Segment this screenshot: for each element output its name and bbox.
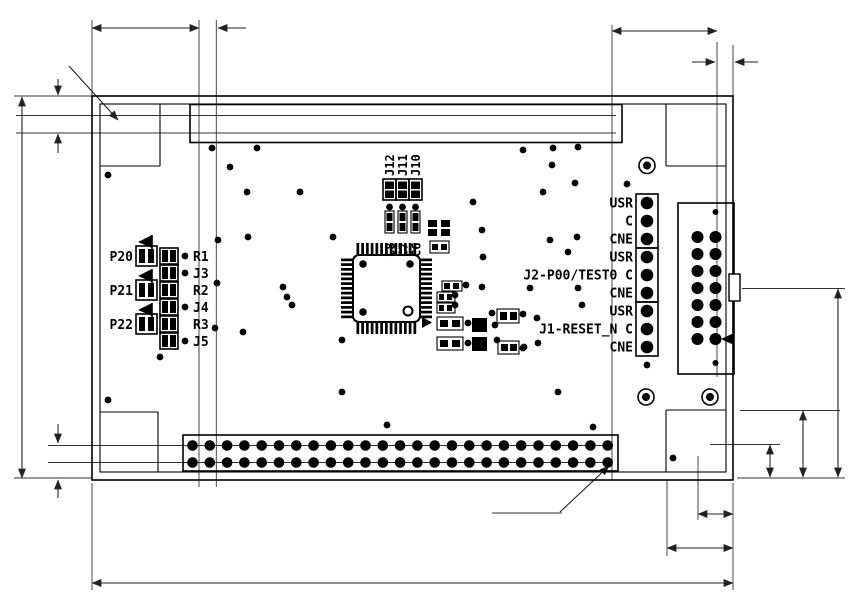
cn2-pin: [481, 440, 492, 451]
via: [244, 189, 251, 196]
ic-pin: [376, 243, 379, 255]
via: [227, 164, 234, 171]
header-row-label: CNE: [610, 233, 633, 248]
cne-pin: [710, 282, 722, 294]
ic-pin: [409, 322, 412, 334]
cne-index-dot-bottom: [713, 360, 719, 366]
header-pin: [641, 233, 654, 246]
ref-label: J4: [193, 301, 209, 316]
via: [644, 362, 651, 369]
connector-cn2: [183, 435, 618, 471]
header-pin: [641, 323, 654, 336]
cn2-pin: [395, 457, 406, 468]
via: [452, 302, 459, 309]
ic-pin: [357, 243, 360, 255]
cn2-pin: [464, 457, 475, 468]
top-jumper-label: J12: [383, 154, 397, 176]
ic-pin: [357, 322, 360, 334]
ic-pin: [341, 282, 353, 285]
via: [527, 285, 534, 292]
via: [399, 204, 406, 211]
cap-label: C8: [384, 243, 398, 257]
ic-pin: [341, 297, 353, 300]
cn2-pin: [516, 440, 527, 451]
ic-pin: [361, 322, 364, 334]
via: [254, 145, 261, 152]
cne-pin1-arrow: [721, 333, 734, 345]
ic-pin: [341, 278, 353, 281]
via: [297, 189, 304, 196]
cn2-pin: [395, 440, 406, 451]
ic-pin: [376, 322, 379, 334]
cne-pin: [710, 231, 722, 243]
pcb-dimension-drawing: USRCCNEUSRJ2-P00/TEST0 CCNEUSRJ1-RESET_N…: [0, 0, 850, 597]
cap-pad: [400, 223, 406, 231]
via: [212, 325, 219, 332]
port-label: P21: [110, 284, 134, 299]
via: [412, 204, 419, 211]
header-row-label: C: [625, 215, 633, 230]
ic-pin: [366, 322, 369, 334]
cn2-pin: [499, 457, 510, 468]
ic-pin: [420, 268, 432, 271]
cap-pad: [387, 223, 393, 231]
cne-pin: [692, 299, 704, 311]
cne-pin: [692, 333, 704, 345]
cne-pin: [710, 333, 722, 345]
ic-pin: [341, 301, 353, 304]
cn2-pin: [533, 440, 544, 451]
resistor-pad: [170, 318, 176, 330]
cn2-pin: [187, 457, 198, 468]
resistor-pad: [170, 284, 176, 296]
resistor-pad: [162, 267, 168, 279]
cn2-pin: [343, 457, 354, 468]
cn2-pin: [222, 457, 233, 468]
jumper-pad: [411, 182, 420, 190]
cn2-pin: [360, 440, 371, 451]
top-jumpers: J12C8J11C7J10C6: [383, 154, 424, 257]
cap-pad: [413, 213, 419, 221]
jumper-header-pins: [641, 197, 654, 354]
via: [105, 397, 112, 404]
hole-callout-leader: [69, 66, 118, 120]
via: [489, 310, 496, 317]
cap-pad: [413, 223, 419, 231]
ref-label: R3: [193, 318, 209, 333]
via: [520, 147, 527, 154]
ic-pin: [420, 273, 432, 276]
via: [182, 304, 189, 311]
ic-pin: [420, 306, 432, 309]
led-pad: [148, 249, 154, 263]
drawing-canvas: USRCCNEUSRJ2-P00/TEST0 CCNEUSRJ1-RESET_N…: [0, 0, 850, 597]
via: [565, 249, 572, 256]
cn2-pin: [551, 457, 562, 468]
cn2-pin: [602, 440, 613, 451]
ic-pin: [404, 322, 407, 334]
cn2-pin: [585, 457, 596, 468]
cn2-pin: [378, 440, 389, 451]
via: [280, 284, 287, 291]
via: [575, 285, 582, 292]
resistor-pad: [162, 318, 168, 330]
header-pin: [641, 305, 654, 318]
via: [214, 280, 221, 287]
via: [492, 322, 499, 329]
led-pad: [139, 249, 145, 263]
cn2-pin: [568, 440, 579, 451]
ref-label: R2: [193, 284, 209, 299]
ref-label: J3: [193, 267, 209, 282]
connector-cne: [678, 203, 740, 374]
ic-pin: [420, 278, 432, 281]
via: [339, 389, 346, 396]
led-pad: [139, 283, 145, 297]
via: [575, 144, 582, 151]
header-row-label: USR: [610, 197, 634, 212]
via: [547, 237, 554, 244]
via: [157, 354, 164, 361]
ic-pin: [420, 263, 432, 266]
cn2-pin: [447, 457, 458, 468]
cne-pin: [710, 299, 722, 311]
cne-pin: [710, 316, 722, 328]
header-pin: [641, 197, 654, 210]
jumper-pad: [385, 182, 394, 190]
jumper-header: USRCCNEUSRJ2-P00/TEST0 CCNEUSRJ1-RESET_N…: [523, 194, 658, 356]
resistor-pad: [162, 335, 168, 347]
via: [289, 302, 296, 309]
cne-pin: [710, 265, 722, 277]
cn2-pin: [291, 440, 302, 451]
cn2-pin: [447, 440, 458, 451]
via: [215, 237, 222, 244]
via: [384, 422, 391, 429]
cne-latch-tab: [729, 274, 740, 301]
via: [479, 227, 486, 234]
cn2-pin: [585, 440, 596, 451]
cn2-pin: [429, 440, 440, 451]
ic-pin: [399, 322, 402, 334]
resistor-pad: [162, 301, 168, 313]
cn2-pin: [274, 457, 285, 468]
cn2-pin: [326, 457, 337, 468]
vdd-pad: [642, 393, 650, 401]
jumper-pad: [398, 191, 407, 199]
cn2-pin: [378, 457, 389, 468]
cne-pin: [692, 265, 704, 277]
via: [572, 180, 579, 187]
via: [465, 340, 472, 347]
cn2-pin: [326, 440, 337, 451]
cn2-pin: [291, 457, 302, 468]
via: [182, 270, 189, 277]
ic-pin: [420, 311, 432, 314]
cne-pin: [692, 231, 704, 243]
cn2-pin: [205, 457, 216, 468]
ic-pin: [341, 306, 353, 309]
header-pin: [641, 341, 654, 354]
ic-pin: [341, 268, 353, 271]
cn2-pin: [256, 457, 267, 468]
cne-pin: [710, 248, 722, 260]
via: [465, 320, 472, 327]
ic-pin1-mark: [404, 307, 413, 316]
resistor-pad: [170, 301, 176, 313]
ic-pin: [420, 259, 432, 262]
cap-pad: [400, 213, 406, 221]
ic-pin: [385, 322, 388, 334]
cn2-pin: [239, 440, 250, 451]
jumper-pad: [385, 191, 394, 199]
resistor-pad: [162, 284, 168, 296]
ic-pin: [341, 292, 353, 295]
jumper-pad: [411, 191, 420, 199]
led-pad: [139, 317, 145, 331]
via: [240, 329, 247, 336]
resistor-pad: [170, 250, 176, 262]
via: [590, 424, 597, 431]
header-row-label: USR: [610, 251, 634, 266]
led-pad: [148, 317, 154, 331]
via: [555, 389, 562, 396]
top-jumper-label: J10: [409, 154, 423, 176]
cne-index-dot-top: [713, 209, 719, 215]
ic-pin: [414, 322, 417, 334]
via: [550, 145, 557, 152]
ic-pin: [420, 301, 432, 304]
header-row-label: J2-P00/TEST0 C: [523, 269, 633, 284]
port-label: P20: [110, 250, 134, 265]
via: [494, 337, 501, 344]
cn2-pin: [412, 457, 423, 468]
ic-pin: [420, 282, 432, 285]
cap-pad: [387, 213, 393, 221]
pwr-via: [624, 181, 631, 188]
ic-pin: [420, 316, 432, 319]
cn2-pin: [239, 457, 250, 468]
cap-label: C6: [410, 243, 424, 257]
uvdd-pad: [643, 162, 651, 170]
via: [386, 204, 393, 211]
ic-pin: [341, 263, 353, 266]
ic-pin: [361, 243, 364, 255]
via: [245, 234, 252, 241]
cn2-pin: [464, 440, 475, 451]
header-pin: [641, 287, 654, 300]
header-row-label: CNE: [610, 341, 633, 356]
via: [579, 302, 586, 309]
via: [520, 311, 527, 318]
header-pin: [641, 215, 654, 228]
ic-pin: [341, 311, 353, 314]
cn2-pin: [205, 440, 216, 451]
led-pad: [148, 283, 154, 297]
via: [182, 338, 189, 345]
via: [479, 284, 486, 291]
via: [521, 344, 528, 351]
cn2-pin: [551, 440, 562, 451]
c4-polarity-mark: [422, 317, 432, 328]
ic-pin: [366, 243, 369, 255]
board-outline: [92, 96, 733, 480]
via: [463, 282, 470, 289]
cn2-pin: [499, 440, 510, 451]
vss-pad: [706, 393, 714, 401]
connector-cn1: [190, 105, 622, 143]
cne-pin: [692, 248, 704, 260]
cn2-pin: [533, 457, 544, 468]
via: [574, 234, 581, 241]
cn1-body: [190, 105, 622, 143]
via: [535, 340, 542, 347]
ic-pin: [420, 292, 432, 295]
ic-pin: [341, 273, 353, 276]
ic-pin: [341, 287, 353, 290]
cn2-pin: [429, 457, 440, 468]
cn2-pins: [187, 440, 613, 468]
cn2-pin: [343, 440, 354, 451]
cn2-pin: [308, 440, 319, 451]
via: [670, 455, 677, 462]
cne-pin: [692, 282, 704, 294]
cn2-pin: [360, 457, 371, 468]
cn2-pin: [602, 457, 613, 468]
cn2-pin: [274, 440, 285, 451]
via: [534, 315, 541, 322]
header-pin: [641, 269, 654, 282]
header-row-label: USR: [610, 305, 634, 320]
cn2-pin: [256, 440, 267, 451]
port-label: P22: [110, 318, 133, 333]
x1-pad-bottom: [472, 337, 487, 351]
resistor-pad: [170, 267, 176, 279]
via: [182, 253, 189, 260]
cn2-pin: [516, 457, 527, 468]
via: [209, 145, 216, 152]
ic-pin: [371, 243, 374, 255]
resistor-pad: [162, 250, 168, 262]
via: [540, 189, 547, 196]
via: [549, 162, 556, 169]
led-resistor-block: P20R1J3P21R2J4P22R3J5: [110, 235, 209, 350]
cn2-pin: [187, 440, 198, 451]
via: [480, 254, 487, 261]
header-row-label: CNE: [610, 287, 633, 302]
via: [330, 234, 337, 241]
hole-dia-leader: [560, 466, 609, 512]
via: [284, 294, 291, 301]
cn2-pin: [222, 440, 233, 451]
ic-pin: [395, 322, 398, 334]
ic-pin: [341, 316, 353, 319]
jumper-header-labels: USRCCNEUSRJ2-P00/TEST0 CCNEUSRJ1-RESET_N…: [523, 197, 633, 356]
ic-pin: [341, 259, 353, 262]
board-outer-edge: [92, 96, 733, 480]
small-components: J12C8J11C7J10C6: [383, 154, 519, 354]
ref-label: J5: [193, 335, 209, 350]
via: [339, 337, 346, 344]
ic-pin: [371, 322, 374, 334]
ic-pin: [380, 322, 383, 334]
jumper-pad: [398, 182, 407, 190]
resistor-pad: [170, 335, 176, 347]
header-pin: [641, 251, 654, 264]
cne-pin: [692, 316, 704, 328]
cn2-pin: [481, 457, 492, 468]
ref-label: R1: [193, 250, 209, 265]
via: [105, 172, 112, 179]
top-jumper-label: J11: [396, 154, 410, 176]
header-row-label: J1-RESET_N C: [539, 323, 633, 338]
cn2-pin: [412, 440, 423, 451]
x1-pad-top: [472, 318, 487, 332]
ic-pin: [420, 297, 432, 300]
via: [452, 292, 459, 299]
via: [470, 199, 477, 206]
cn2-pin: [308, 457, 319, 468]
cap-label: C7: [397, 243, 411, 257]
ic-pin: [390, 322, 393, 334]
ic-pin: [420, 287, 432, 290]
cn2-pin: [568, 457, 579, 468]
